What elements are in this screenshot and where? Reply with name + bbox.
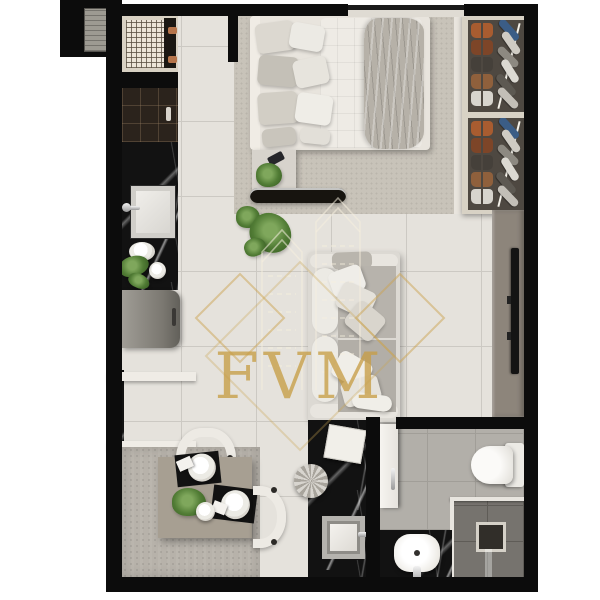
shoes: [471, 155, 493, 170]
wall-left: [106, 0, 122, 592]
kitchen-sink-basin: [136, 191, 170, 233]
bowl: [149, 262, 166, 279]
island-sink-basin: [330, 524, 357, 551]
fridge-handle: [172, 308, 176, 326]
cooktop: [122, 88, 178, 142]
service-grate: [122, 16, 178, 72]
counter-tray: [323, 424, 366, 464]
shoes: [471, 57, 493, 72]
tv-mount: [507, 296, 511, 304]
bed: [250, 16, 430, 150]
bed-pillow: [294, 92, 334, 127]
wall-right: [524, 4, 538, 592]
shoes: [471, 189, 493, 204]
kitchen-wall-band: [122, 72, 178, 88]
placemat: [174, 451, 221, 487]
bathroom-door: [380, 424, 398, 508]
bed-blanket: [364, 18, 424, 149]
wall-stub-bedroom: [228, 4, 238, 62]
kitchen-counter: [122, 142, 178, 290]
toilet: [471, 446, 513, 484]
shoes: [471, 23, 493, 38]
dinner-plate: [186, 452, 217, 483]
chair-arm-cap: [271, 539, 277, 545]
bathroom-vanity: [380, 530, 452, 577]
floorplan-canvas: FVM: [0, 0, 600, 600]
placemat: [210, 484, 258, 523]
closet: [462, 14, 532, 214]
wall-bottom: [106, 577, 538, 592]
kitchen-herbs: [126, 270, 152, 292]
shoes: [471, 40, 493, 55]
tv-mount: [507, 332, 511, 340]
foot-of-bed-bench: [250, 188, 346, 203]
nightstand: [252, 150, 296, 190]
sink-drain-dot: [414, 550, 420, 556]
bathroom-wall-left: [366, 417, 380, 577]
drain-channel: [485, 549, 492, 577]
shoes: [471, 91, 493, 106]
bed-pillow: [257, 91, 299, 126]
tv-panel: [492, 210, 524, 417]
closet-compartment: [468, 20, 526, 112]
shower-floor: [452, 500, 524, 577]
copper-pipe: [168, 56, 177, 63]
shoes: [471, 138, 493, 153]
chair-arm-cap: [271, 487, 277, 493]
sofa: [308, 252, 400, 422]
kitchen-sink: [131, 186, 175, 238]
copper-pipe: [168, 27, 177, 34]
shoes: [471, 121, 493, 136]
bed-pillow: [299, 126, 331, 145]
shower-drain: [476, 522, 506, 552]
island-sink: [322, 516, 365, 559]
bed-pillow: [261, 126, 297, 147]
shoes: [471, 74, 493, 89]
fridge: [122, 290, 180, 348]
window-sill: [348, 10, 466, 17]
nightstand-plant: [256, 163, 282, 187]
closet-compartment: [468, 118, 526, 210]
shower-glass: [450, 497, 524, 501]
dining-table: [158, 457, 252, 538]
bathroom-wall-top: [396, 417, 524, 429]
island-counter: [308, 420, 368, 577]
door-handle: [391, 468, 395, 490]
cooktop-handle: [166, 107, 171, 121]
tv: [511, 248, 519, 374]
bed-pillow: [288, 21, 326, 53]
counter-stool: [294, 464, 328, 498]
kitchen-faucet-base: [122, 203, 131, 212]
plant-pot: [196, 502, 215, 521]
shoes: [471, 172, 493, 187]
